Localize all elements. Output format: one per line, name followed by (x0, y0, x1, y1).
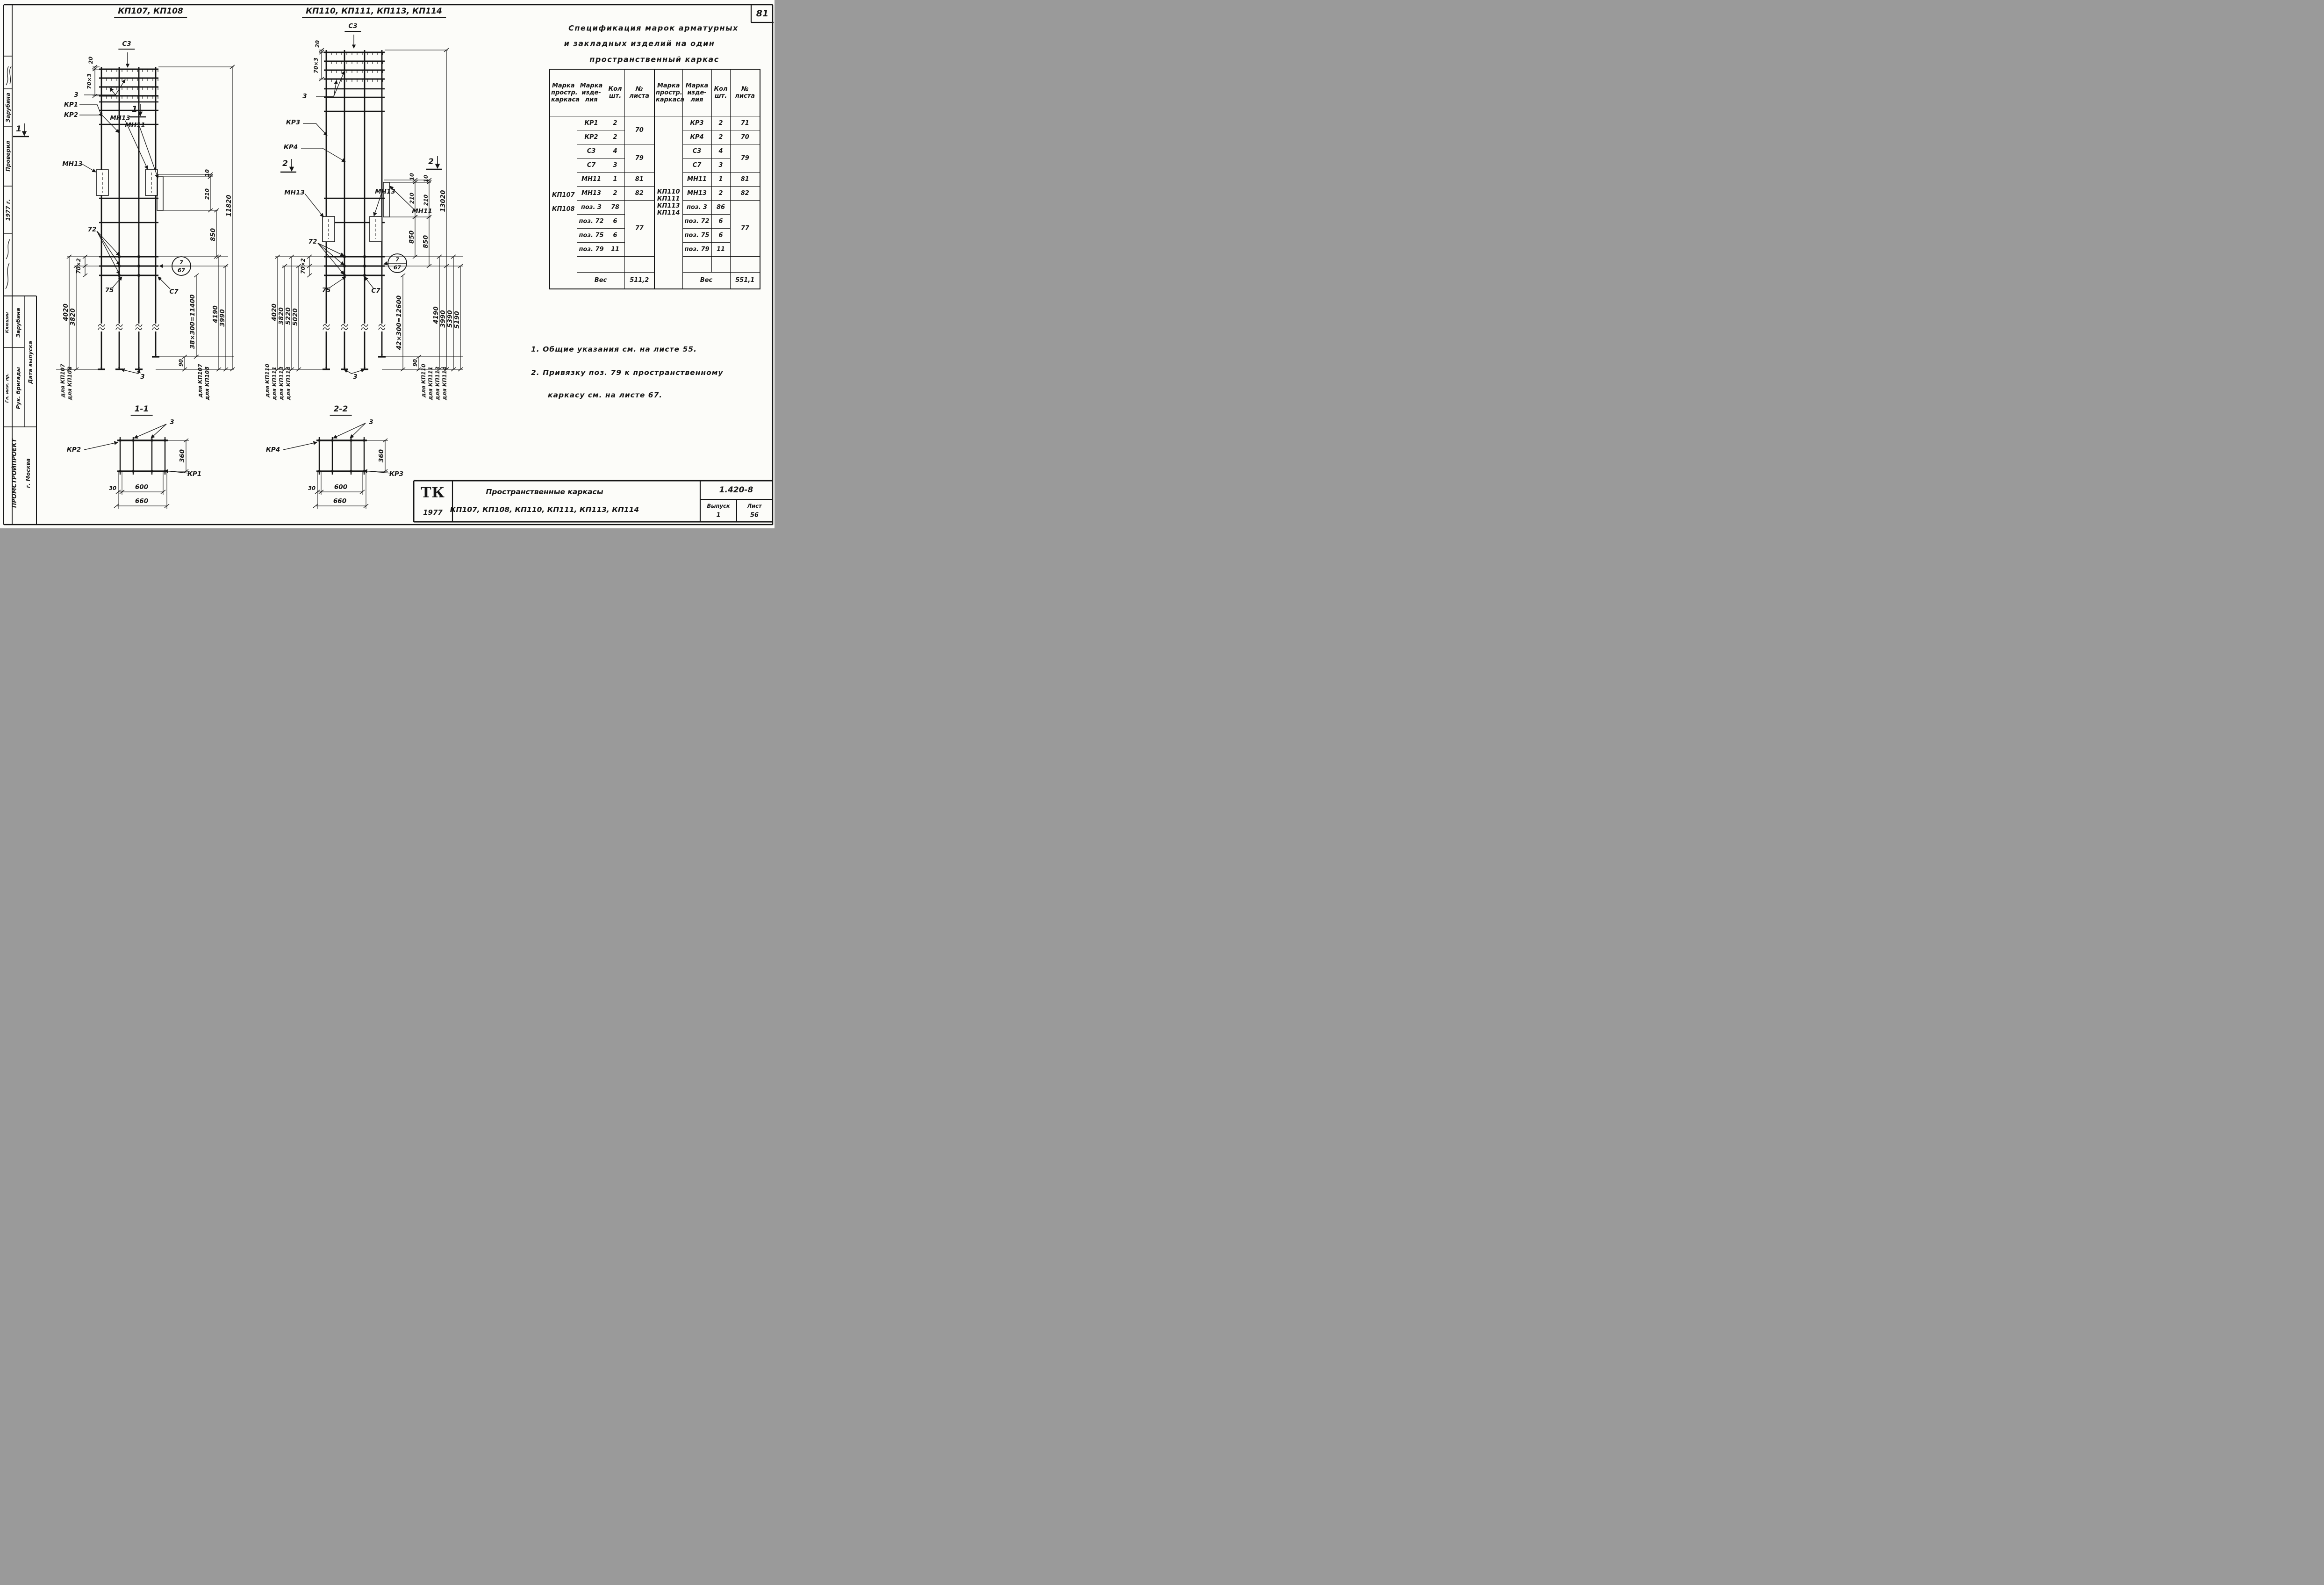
variant-label: для КП114 (441, 367, 448, 400)
issue-number: 1 (716, 512, 720, 519)
table-cell (606, 256, 624, 272)
table-cell: 11 (711, 242, 730, 256)
dim-label: 13020 (439, 190, 447, 212)
col-header: № листа (730, 69, 760, 116)
section-title: 1-1 (131, 404, 153, 416)
table-cell: МН13 (577, 186, 606, 200)
stamp-name: Зарубина (15, 308, 22, 337)
dim-label: 850 (422, 235, 430, 248)
stamp-label: Проверил (5, 141, 11, 172)
table-cell: поз. 72 (682, 214, 711, 228)
section-marker: 2 (282, 159, 288, 168)
table-cell: 86 (711, 200, 730, 214)
drawing-sheet: КП107, КП108 С3 20 70×3 3 КР1 КР2 МН13 М… (0, 0, 775, 528)
karkas-marks: КП110 КП111 КП113 КП114 (654, 116, 682, 289)
table-cell: 6 (711, 228, 730, 242)
part-label: МН11 (412, 208, 432, 215)
table-cell: 3 (711, 158, 730, 172)
dim-label: 90 (178, 359, 184, 367)
right-drawing-title: КП110, КП111, КП113, КП114 (302, 7, 446, 18)
part-label: МН13 (284, 189, 305, 196)
variant-label: для КП108 (204, 367, 210, 400)
stamp-name: Зарубина (5, 93, 11, 122)
dim-label: 70×2 (300, 258, 306, 274)
dim-label: 90 (412, 359, 418, 367)
note-line: 2. Привязку поз. 79 к пространственному (531, 368, 724, 377)
dim-label: 38×300=11400 (189, 295, 196, 349)
dim-label: 5390 (446, 310, 454, 328)
detail-ref-number: 7 (395, 256, 399, 263)
dim-label: 3820 (278, 307, 285, 325)
stamp-label: Дата выпуска (27, 341, 34, 384)
pos-label: 3 (302, 93, 307, 100)
table-cell: 70 (730, 130, 760, 144)
dim-label: 20 (87, 57, 94, 64)
table-cell: 77 (730, 200, 760, 256)
dim-label: 850 (408, 231, 416, 244)
spec-table-kp107: Марка простр. каркаса Марка изде- лия Ко… (549, 69, 655, 289)
table-cell: С7 (577, 158, 606, 172)
spec-table-kp110: Марка простр. каркаса Марка изде- лия Ко… (654, 69, 760, 289)
stamp-name: Клюшин (5, 312, 10, 333)
table-cell: 2 (711, 186, 730, 200)
karkas-marks: КП107 КП108 (550, 116, 577, 289)
stamp-year: 1977 г. (5, 199, 11, 221)
col-header: Марка изде- лия (682, 69, 711, 116)
variant-label: для КП107 (59, 364, 66, 397)
table-cell: поз. 72 (577, 214, 606, 228)
dim-label: 4190 (212, 305, 219, 323)
note-line: 1. Общие указания см. на листе 55. (531, 345, 697, 353)
issue-label: Выпуск (707, 503, 730, 509)
stamp-label: Рук. бригады (15, 367, 22, 409)
table-cell: МН11 (682, 172, 711, 186)
table-cell: КР4 (682, 130, 711, 144)
part-label: МН11 (125, 122, 145, 129)
table-cell: КР2 (577, 130, 606, 144)
spec-title-line1: Спецификация марок арматурных (568, 24, 739, 33)
table-cell (682, 256, 711, 272)
table-cell: 6 (606, 228, 624, 242)
variant-label: для КП107 (197, 364, 203, 397)
spec-title-line2: и закладных изделий на один (564, 39, 715, 48)
table-cell: 2 (711, 116, 730, 130)
section-marker: 1 (16, 124, 22, 134)
pos-label: 75 (322, 287, 331, 294)
pos-label: 3 (74, 91, 78, 99)
part-label: КР3 (286, 119, 300, 126)
part-label: С7 (371, 287, 380, 295)
dim-label: 70×2 (75, 258, 82, 274)
dim-label: 5020 (292, 308, 299, 326)
table-cell: 3 (606, 158, 624, 172)
variant-label: для КП110 (264, 364, 271, 397)
dim-label: 11820 (225, 195, 233, 217)
left-drawing-title: КП107, КП108 (114, 7, 187, 18)
variant-label: для КП114 (285, 367, 292, 400)
table-cell: 82 (624, 186, 654, 200)
col-header: Кол шт. (606, 69, 624, 116)
dim-label: 4020 (271, 303, 278, 321)
table-cell: 82 (730, 186, 760, 200)
section-marker: 2 (428, 157, 434, 166)
pos-label: 3 (170, 418, 174, 426)
spec-title-line3: пространственный каркас (589, 55, 719, 64)
detail-ref-number: 7 (179, 259, 183, 266)
variant-label: для КП108 (66, 367, 73, 400)
weight-value: 551,1 (730, 272, 760, 289)
page-number: 81 (756, 8, 768, 19)
logo-year: 1977 (423, 508, 443, 517)
dim-label: 4020 (62, 303, 70, 321)
dim-label: 10 (204, 169, 210, 177)
table-cell: поз. 3 (682, 200, 711, 214)
table-cell: 78 (606, 200, 624, 214)
dim-label: 360 (378, 449, 385, 462)
table-cell: 6 (606, 214, 624, 228)
titleblock-line1: Пространственные каркасы (486, 488, 603, 496)
table-cell: КР3 (682, 116, 711, 130)
series-code: 1.420-8 (719, 485, 753, 495)
dim-label: 10 (409, 173, 415, 180)
table-cell: 6 (711, 214, 730, 228)
table-cell: поз. 79 (682, 242, 711, 256)
table-cell: поз. 75 (682, 228, 711, 242)
sheet-number: 56 (750, 512, 759, 519)
dim-label: 600 (135, 483, 148, 491)
table-cell: 77 (624, 200, 654, 256)
table-cell: С3 (682, 144, 711, 158)
col-header: Кол шт. (711, 69, 730, 116)
dim-label: 3990 (439, 310, 447, 328)
weight-label: Вес (577, 272, 624, 289)
variant-label: для КП110 (420, 364, 427, 397)
part-label: МН13 (110, 115, 130, 122)
table-cell: 81 (730, 172, 760, 186)
pos-label: 3 (140, 373, 144, 381)
stamp-label: Гл. инж. пр. (5, 374, 10, 403)
part-label: КР2 (67, 446, 81, 454)
dim-label: 210 (409, 193, 415, 204)
pos-label: 75 (105, 287, 114, 294)
table-cell: 2 (606, 130, 624, 144)
detail-ref-sheet: 67 (394, 264, 401, 271)
part-label: МН13 (375, 188, 395, 195)
part-label: КР2 (64, 111, 78, 119)
pos-label: 3 (353, 373, 357, 381)
mesh-mark-label: С3 (118, 40, 135, 50)
table-cell: 1 (606, 172, 624, 186)
dim-label: 660 (333, 497, 346, 505)
table-cell (711, 256, 730, 272)
mesh-mark-label: С3 (344, 22, 361, 32)
section-marker: 1 (132, 105, 137, 114)
dim-label: 660 (135, 497, 148, 505)
org-logo: ТК (421, 485, 445, 501)
table-cell: 71 (730, 116, 760, 130)
detail-ref-sheet: 67 (178, 267, 185, 274)
dim-label: 4190 (432, 306, 440, 324)
table-cell: 4 (711, 144, 730, 158)
col-header: Марка простр. каркаса (654, 69, 682, 116)
part-label: КР4 (284, 144, 298, 151)
section-title: 2-2 (330, 404, 352, 416)
dim-label: 30 (308, 485, 316, 491)
dim-label: 10 (423, 175, 429, 182)
dim-label: 42×300=12600 (395, 295, 403, 350)
table-cell (624, 256, 654, 272)
dim-label: 30 (109, 485, 116, 491)
part-label: КР4 (266, 446, 280, 454)
table-cell: поз. 3 (577, 200, 606, 214)
dim-label: 850 (209, 228, 217, 241)
dim-label: 3820 (69, 308, 77, 326)
pos-label: 3 (369, 418, 373, 426)
table-cell: С7 (682, 158, 711, 172)
table-cell: поз. 75 (577, 228, 606, 242)
stamp-city: г. Москва (25, 458, 31, 488)
table-cell: 11 (606, 242, 624, 256)
variant-label: для КП111 (271, 367, 278, 400)
dim-label: 360 (179, 449, 186, 462)
table-cell (730, 256, 760, 272)
dim-label: 70×3 (313, 58, 319, 73)
table-cell (577, 256, 606, 272)
note-line: каркасу см. на листе 67. (548, 391, 662, 399)
stamp-org: ПРОМСТРОЙПРОЕКТ (11, 439, 18, 508)
part-label: МН13 (62, 160, 83, 168)
pos-label: 72 (88, 226, 97, 233)
col-header: Марка изде- лия (577, 69, 606, 116)
table-cell: МН13 (682, 186, 711, 200)
table-cell: С3 (577, 144, 606, 158)
table-cell: 1 (711, 172, 730, 186)
dim-label: 20 (314, 40, 321, 48)
table-cell: 2 (711, 130, 730, 144)
variant-label: для КП113 (434, 367, 441, 400)
part-label: КР1 (187, 470, 201, 478)
variant-label: для КП111 (427, 367, 434, 400)
pos-label: 72 (308, 238, 317, 245)
dim-label: 210 (204, 188, 210, 200)
part-label: КР1 (64, 101, 78, 108)
col-header: № листа (624, 69, 654, 116)
dim-label: 600 (334, 483, 347, 491)
table-cell: 4 (606, 144, 624, 158)
sheet-label: Лист (747, 503, 761, 509)
col-header: Марка простр. каркаса (550, 69, 577, 116)
dim-label: 70×3 (86, 73, 93, 89)
part-label: КР3 (389, 470, 403, 478)
dim-label: 3990 (219, 309, 226, 327)
table-cell: 70 (624, 116, 654, 144)
part-label: С7 (169, 288, 178, 295)
table-cell: поз. 79 (577, 242, 606, 256)
dim-label: 5190 (453, 311, 461, 329)
variant-label: для КП113 (278, 367, 285, 400)
table-cell: 2 (606, 186, 624, 200)
dim-label: 5220 (285, 307, 292, 325)
table-cell: 81 (624, 172, 654, 186)
dim-label: 210 (423, 195, 429, 206)
table-cell: 2 (606, 116, 624, 130)
weight-label: Вес (682, 272, 730, 289)
table-cell: КР1 (577, 116, 606, 130)
table-cell: 79 (730, 144, 760, 172)
table-cell: МН11 (577, 172, 606, 186)
table-cell: 79 (624, 144, 654, 172)
titleblock-line2: КП107, КП108, КП110, КП111, КП113, КП114 (450, 505, 639, 514)
weight-value: 511,2 (624, 272, 654, 289)
